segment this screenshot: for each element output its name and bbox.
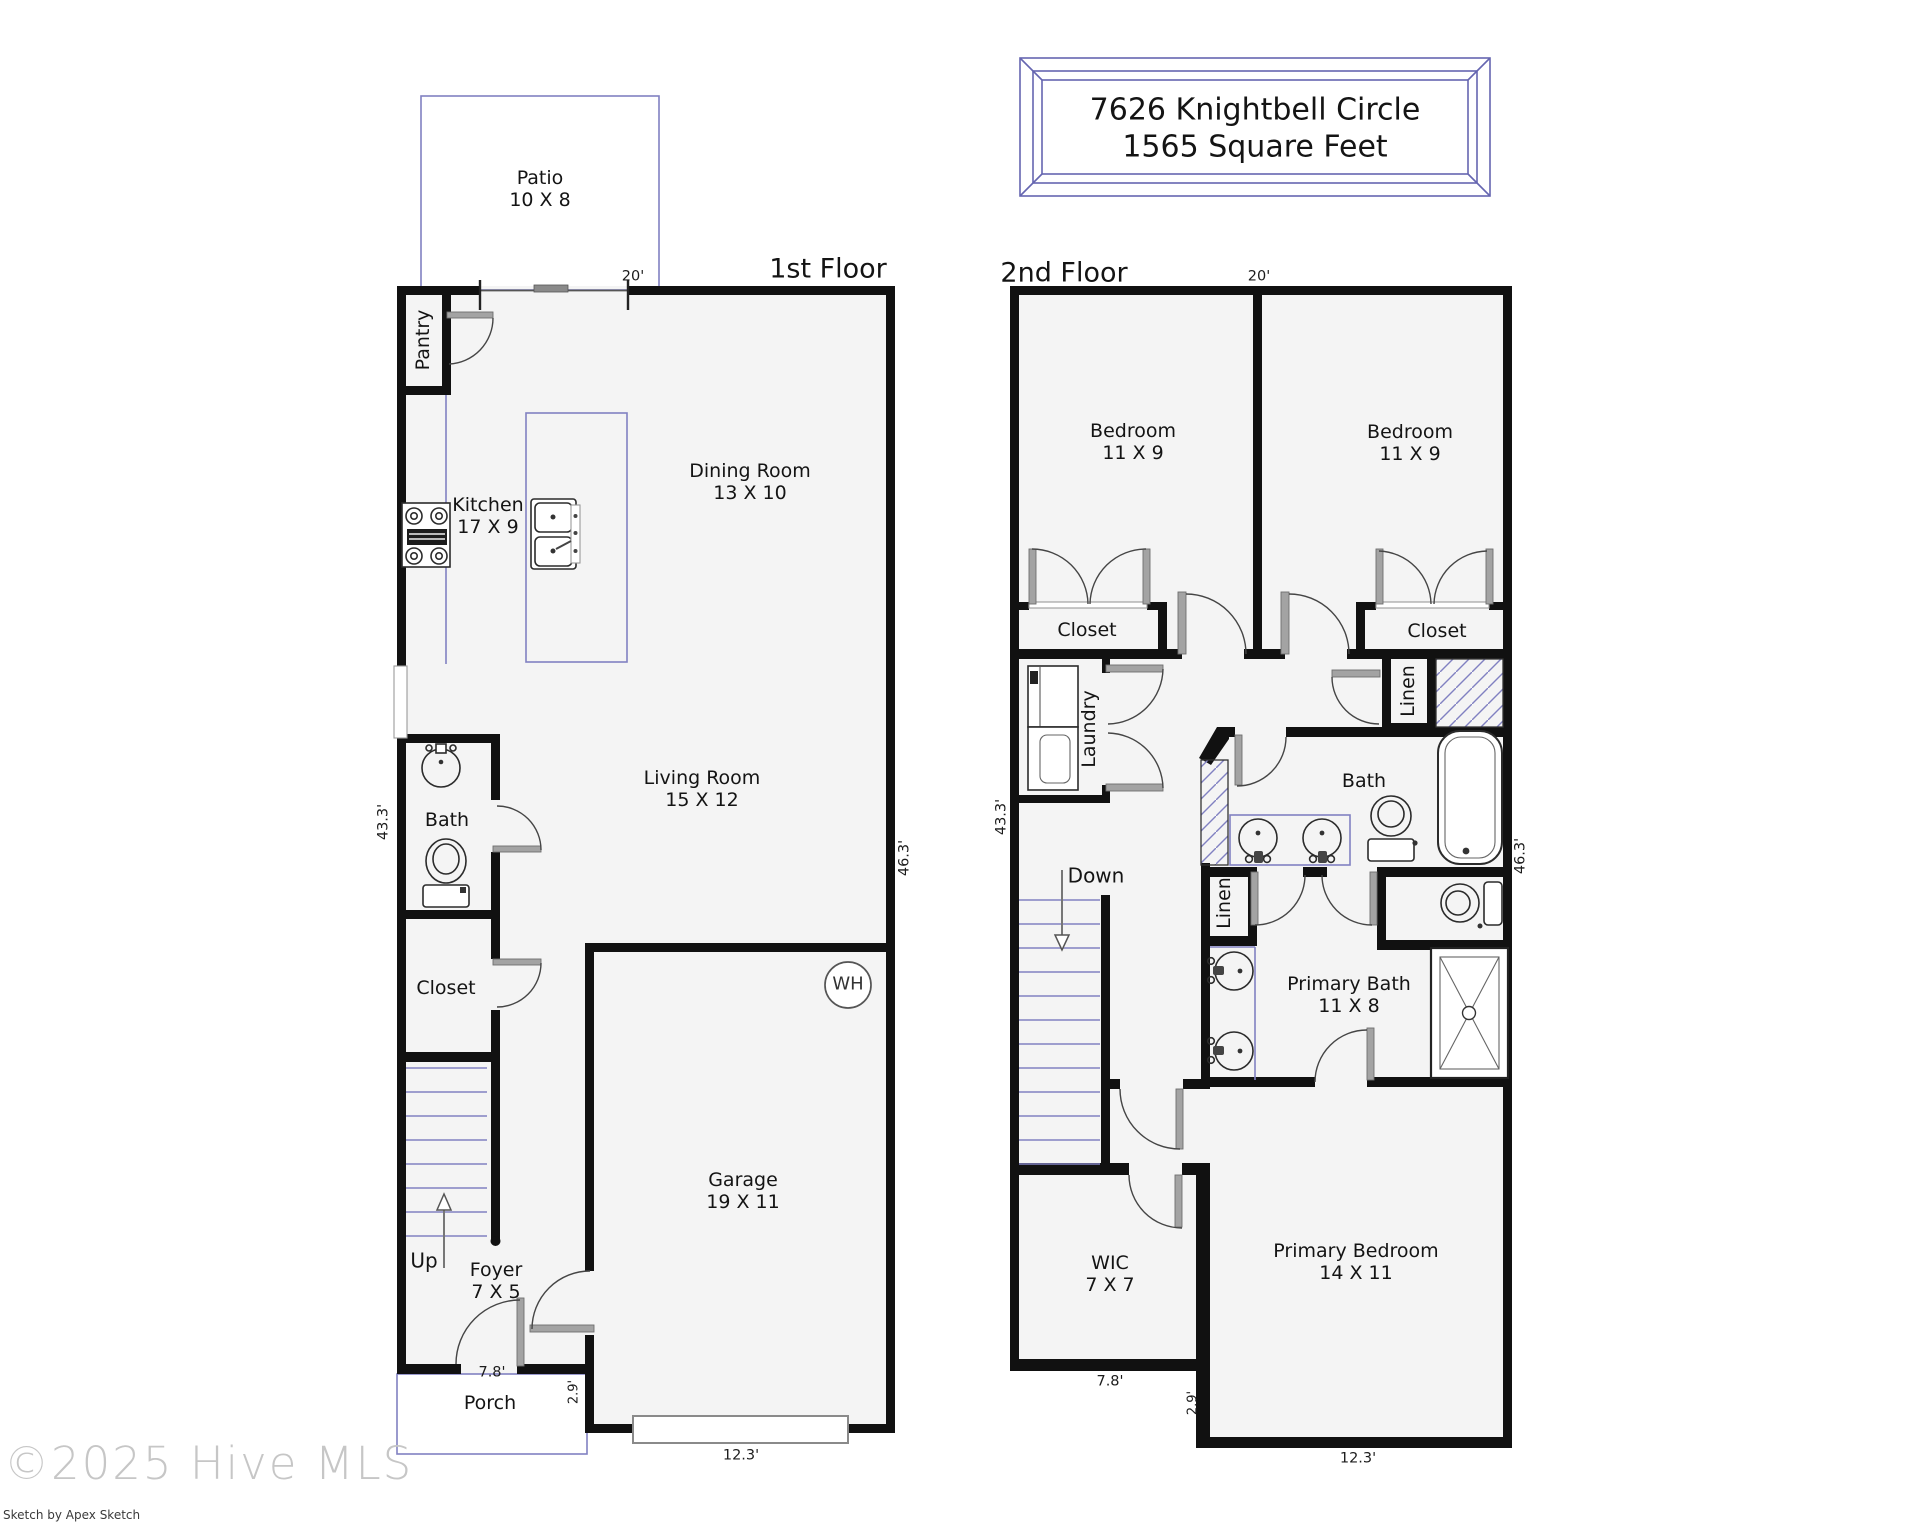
island-sink-icon xyxy=(531,499,580,569)
stairs-down-label: Down xyxy=(1068,864,1125,887)
room-label-closet2: Closet xyxy=(1407,620,1466,642)
room-label-living: Living Room15 X 12 xyxy=(644,767,761,811)
closet-opening xyxy=(1376,602,1489,608)
floor-plan-drawing xyxy=(0,0,1911,1525)
second-floor-title: 2nd Floor xyxy=(1000,257,1127,288)
stove-icon xyxy=(402,503,450,567)
first-floor-title: 1st Floor xyxy=(769,253,887,284)
room-label-closet: Closet xyxy=(416,977,475,999)
room-label-bedroom2: Bedroom11 X 9 xyxy=(1367,421,1453,465)
room-label-linen1: Linen xyxy=(1397,665,1419,717)
room-label-patio: Patio10 X 8 xyxy=(509,167,570,211)
garage-door xyxy=(633,1416,848,1443)
room-label-bath: Bath xyxy=(425,809,469,831)
address-line: 7626 Knightbell Circle xyxy=(1090,94,1421,129)
dim-garage-width: 12.3' xyxy=(723,1448,759,1465)
room-label-laundry: Laundry xyxy=(1078,690,1100,767)
washer-dryer-icon xyxy=(1028,666,1078,790)
room-label-linen2: Linen xyxy=(1213,877,1235,929)
stairs-up-label: Up xyxy=(410,1249,437,1272)
bathtub-icon xyxy=(1438,731,1502,864)
room-label-pantry: Pantry xyxy=(412,310,434,371)
room-label-porch: Porch xyxy=(464,1392,516,1414)
shower-icon xyxy=(1431,948,1508,1078)
floor-plan-sheet: 1st Floor 2nd Floor 7626 Knightbell Circ… xyxy=(0,0,1911,1525)
room-label-primary-bath: Primary Bath11 X 8 xyxy=(1287,973,1411,1017)
dim-right-f1: 46.3' xyxy=(897,840,914,876)
room-label-dining: Dining Room13 X 10 xyxy=(689,460,810,504)
square-feet-line: 1565 Square Feet xyxy=(1122,131,1387,166)
room-label-primary-bedroom: Primary Bedroom14 X 11 xyxy=(1273,1240,1438,1284)
dim-left-f1: 43.3' xyxy=(376,804,393,840)
room-label-wic: WIC7 X 7 xyxy=(1085,1252,1134,1296)
dim-step-f1: 2.9' xyxy=(566,1380,581,1404)
dim-porch-width: 7.8' xyxy=(478,1365,505,1382)
room-label-bedroom1: Bedroom11 X 9 xyxy=(1090,420,1176,464)
room-label-garage: Garage19 X 11 xyxy=(706,1169,779,1213)
dim-top-f1: 20' xyxy=(622,269,644,286)
dim-right-f2: 46.3' xyxy=(1513,838,1530,874)
dim-step-f2: 2.9' xyxy=(1185,1391,1200,1415)
dim-bedroom-width: 12.3' xyxy=(1340,1451,1376,1468)
dim-wic-width: 7.8' xyxy=(1096,1374,1123,1391)
window xyxy=(394,666,407,738)
dim-left-f2: 43.3' xyxy=(994,799,1011,835)
room-label-foyer: Foyer7 X 5 xyxy=(470,1259,523,1303)
room-label-bath2: Bath xyxy=(1342,770,1386,792)
water-heater-label: WH xyxy=(832,975,863,996)
mls-watermark: ©2025 Hive MLS xyxy=(4,1437,413,1490)
room-label-closet1: Closet xyxy=(1057,619,1116,641)
sketch-credit: Sketch by Apex Sketch xyxy=(3,1508,140,1522)
room-label-kitchen: Kitchen17 X 9 xyxy=(452,494,523,538)
dim-top-f2: 20' xyxy=(1248,269,1270,286)
